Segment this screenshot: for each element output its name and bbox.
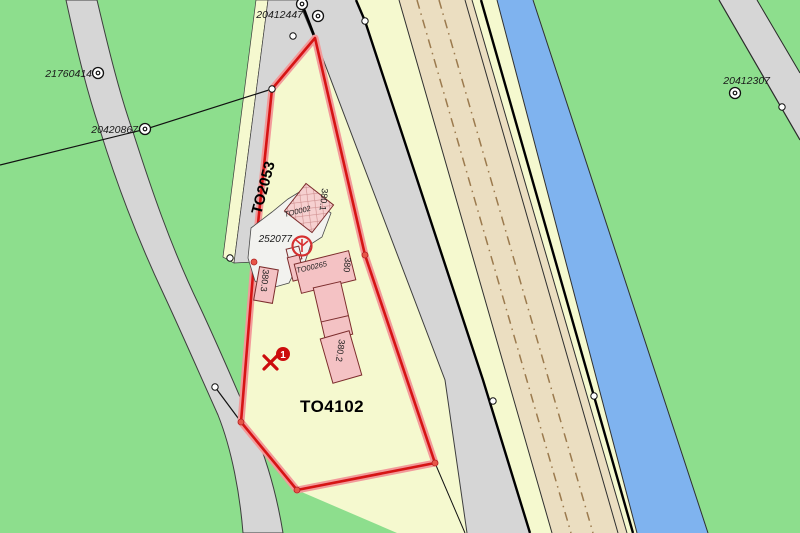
map-canvas[interactable]: 1 (0, 0, 800, 533)
survey-marker-icon (140, 124, 151, 135)
survey-point-label: 20412307 (722, 75, 771, 87)
survey-marker-icon (93, 68, 104, 79)
map-viewport: 1 (0, 0, 800, 533)
survey-marker-icon (313, 11, 324, 22)
building-label-380: 380 (341, 257, 353, 273)
annotation-badge-number: 1 (280, 350, 286, 361)
survey-point-label: 20420867 (90, 124, 139, 136)
survey-point-label-252077: 252077 (258, 234, 293, 245)
survey-marker-icon (730, 88, 741, 99)
survey-point-label: 21760414 (44, 68, 92, 80)
parcel-label-to4102: TO4102 (300, 397, 364, 416)
survey-point-label: 20412447 (255, 9, 304, 21)
annotation-number-badge[interactable]: 1 (276, 347, 290, 361)
